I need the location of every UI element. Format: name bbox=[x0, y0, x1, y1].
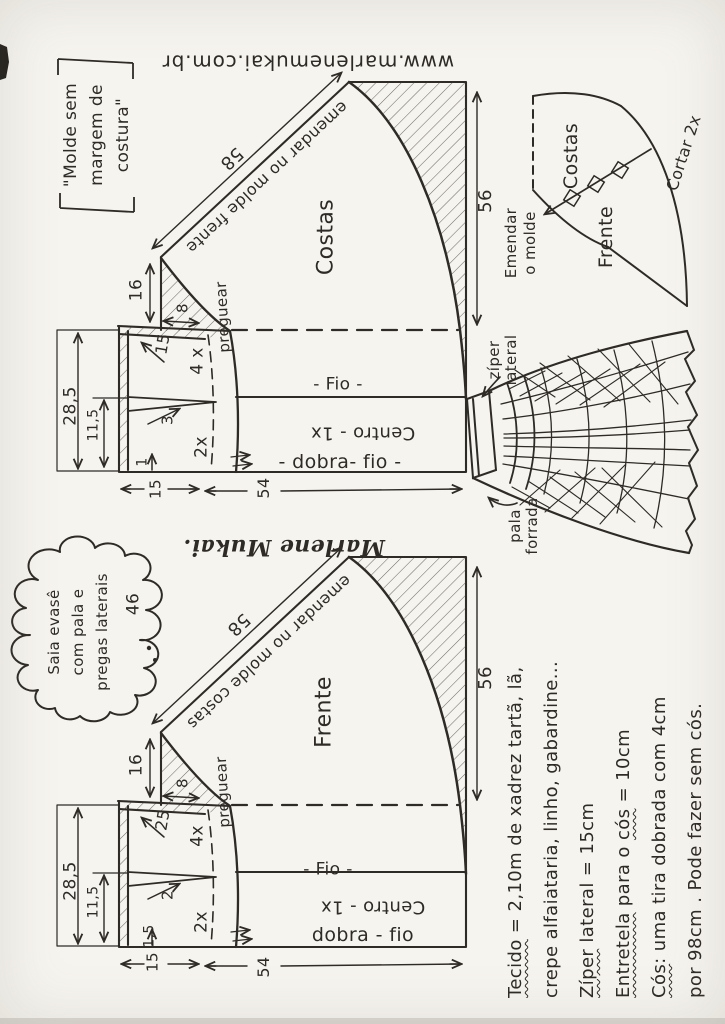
fan-join-label: Emendar o molde bbox=[502, 208, 540, 279]
costas-cut-two: 2x bbox=[191, 436, 212, 458]
mini-fan-diagram bbox=[533, 93, 687, 306]
frente-yoke-lower: 11,5 bbox=[85, 886, 103, 919]
costas-pleat-width: 8 bbox=[174, 303, 193, 313]
costas-dart: 3 bbox=[159, 415, 178, 425]
frente-cut-four: 4x bbox=[187, 825, 208, 847]
frente-side-len: 56 bbox=[475, 666, 498, 690]
cloud-line-2: com pala e bbox=[66, 573, 90, 691]
instr-3-key: Zíper bbox=[577, 949, 598, 998]
signature: Marlene Mukai. bbox=[183, 532, 385, 560]
instr-2-rest: crepe alfaiataria, linho, gabardine... bbox=[541, 661, 562, 998]
instr-1-key: Tecido bbox=[505, 939, 526, 998]
zipper-line-1: zíper bbox=[486, 335, 503, 386]
costas-grain-label: - Fio - bbox=[313, 374, 363, 395]
instr-5-key: Cós bbox=[649, 964, 670, 998]
note-box: "Molde sem margem de costura" bbox=[58, 83, 136, 187]
frente-fold-label: dobra - fio bbox=[312, 924, 414, 948]
fan-join-line-1: Emendar bbox=[502, 208, 521, 279]
fan-front-label: Frente bbox=[595, 206, 619, 268]
frente-pleat-height: 16 bbox=[126, 754, 147, 776]
instr-3-rest: lateral = 15cm bbox=[577, 803, 598, 949]
instruction-line: crepe alfaiataria, linho, gabardine... bbox=[534, 546, 570, 998]
costas-center-label: Centro - 1x bbox=[311, 421, 416, 444]
costas-hem-width: 54 bbox=[254, 477, 274, 498]
frente-pleat-note: preguear bbox=[212, 756, 234, 828]
plaid-crossers bbox=[541, 341, 665, 528]
hem-hatch bbox=[349, 82, 466, 399]
cloud-size: 46 bbox=[123, 593, 144, 615]
costas-yoke-lower: 11,5 bbox=[85, 409, 103, 442]
costas-side-len: 56 bbox=[475, 189, 498, 213]
instr-4-key2: cós bbox=[613, 809, 634, 841]
yoke-left-hatch bbox=[119, 326, 128, 472]
frente-dart: 2 bbox=[159, 890, 178, 900]
frente-upper-mark: 25 bbox=[151, 808, 174, 832]
note-line-3: costura" bbox=[110, 83, 136, 187]
skirt-hem bbox=[685, 331, 698, 553]
costas-upper-mark: 15 bbox=[151, 332, 174, 356]
waistband bbox=[467, 391, 496, 478]
fan-join-line-2: o molde bbox=[521, 208, 540, 279]
site-url: www.marlenemukai.com.br bbox=[162, 50, 454, 75]
costas-yoke-height: 28,5 bbox=[60, 386, 81, 425]
scan-blob bbox=[0, 44, 9, 80]
scan-edge-strip bbox=[0, 1018, 725, 1024]
costas-pleat-note: preguear bbox=[212, 281, 234, 353]
cloud-line-1: Saia evasê bbox=[42, 573, 66, 691]
instr-6-rest: por 98cm . Pode fazer sem cós. bbox=[685, 703, 706, 998]
costas-fold-label: - dobra- fio - bbox=[278, 451, 401, 475]
frente-grain-label: - Fio - bbox=[303, 859, 353, 880]
frente-yoke-height: 28,5 bbox=[60, 861, 81, 900]
frente-cut-two: 2x bbox=[191, 911, 212, 933]
cloud-line-3: pregas laterais bbox=[90, 573, 114, 691]
scanned-pattern-sheet: www.marlenemukai.com.br "Molde sem marge… bbox=[0, 0, 725, 1024]
costas-yoke-width: 15 bbox=[147, 479, 166, 499]
note-line-1: "Molde sem bbox=[58, 83, 84, 187]
instr-5-rest: : uma tira dobrada com 4cm bbox=[649, 696, 670, 964]
instruction-line: por 98cm . Pode fazer sem cós. bbox=[678, 546, 714, 998]
instruction-line: Zíper lateral = 15cm bbox=[570, 546, 606, 998]
frente-pleat-width: 8 bbox=[174, 778, 193, 788]
hem-width-dim bbox=[206, 489, 461, 491]
instr-4-mid: para o bbox=[613, 840, 634, 912]
costas-cut-four: 4 x bbox=[187, 347, 208, 374]
fan-outer-arc bbox=[621, 106, 687, 306]
frente-center-label: Centro - 1x bbox=[321, 895, 426, 918]
instructions-block: Tecido = 2,10m de xadrez tartã, lã, crep… bbox=[498, 546, 714, 998]
costas-name: Costas bbox=[312, 199, 340, 275]
cloud-title: Saia evasê com pala e pregas laterais bbox=[42, 573, 114, 691]
instruction-line: Entretela para o cós = 10cm bbox=[606, 546, 642, 998]
frente-hem-width: 54 bbox=[254, 956, 274, 977]
note-line-2: margem de bbox=[84, 83, 110, 187]
fan-back-label: Costas bbox=[560, 123, 584, 189]
frente-yoke-width: 15 bbox=[144, 952, 163, 972]
zipper-line-2: lateral bbox=[503, 335, 520, 386]
frente-name: Frente bbox=[310, 676, 338, 748]
instruction-line: Tecido = 2,10m de xadrez tartã, lã, bbox=[498, 546, 534, 998]
instr-4-rest: = 10cm bbox=[613, 729, 634, 809]
frente-corner-mark: 1,5 bbox=[141, 924, 159, 947]
instr-4-key: Entretela bbox=[613, 912, 634, 998]
fan-bottom-edge bbox=[608, 247, 687, 306]
costas-pleat-height: 16 bbox=[126, 279, 147, 301]
pleat-mark-arrow1 bbox=[231, 455, 249, 457]
yoke-dart bbox=[128, 397, 216, 411]
sketch-zipper-label: zíper lateral bbox=[486, 335, 520, 386]
instruction-line: Cós: uma tira dobrada com 4cm bbox=[642, 546, 678, 998]
instr-1-rest: = 2,10m de xadrez tartã, lã, bbox=[505, 666, 526, 939]
costas-corner-mark: 1 bbox=[134, 457, 152, 466]
fan-top-edge bbox=[533, 93, 621, 106]
